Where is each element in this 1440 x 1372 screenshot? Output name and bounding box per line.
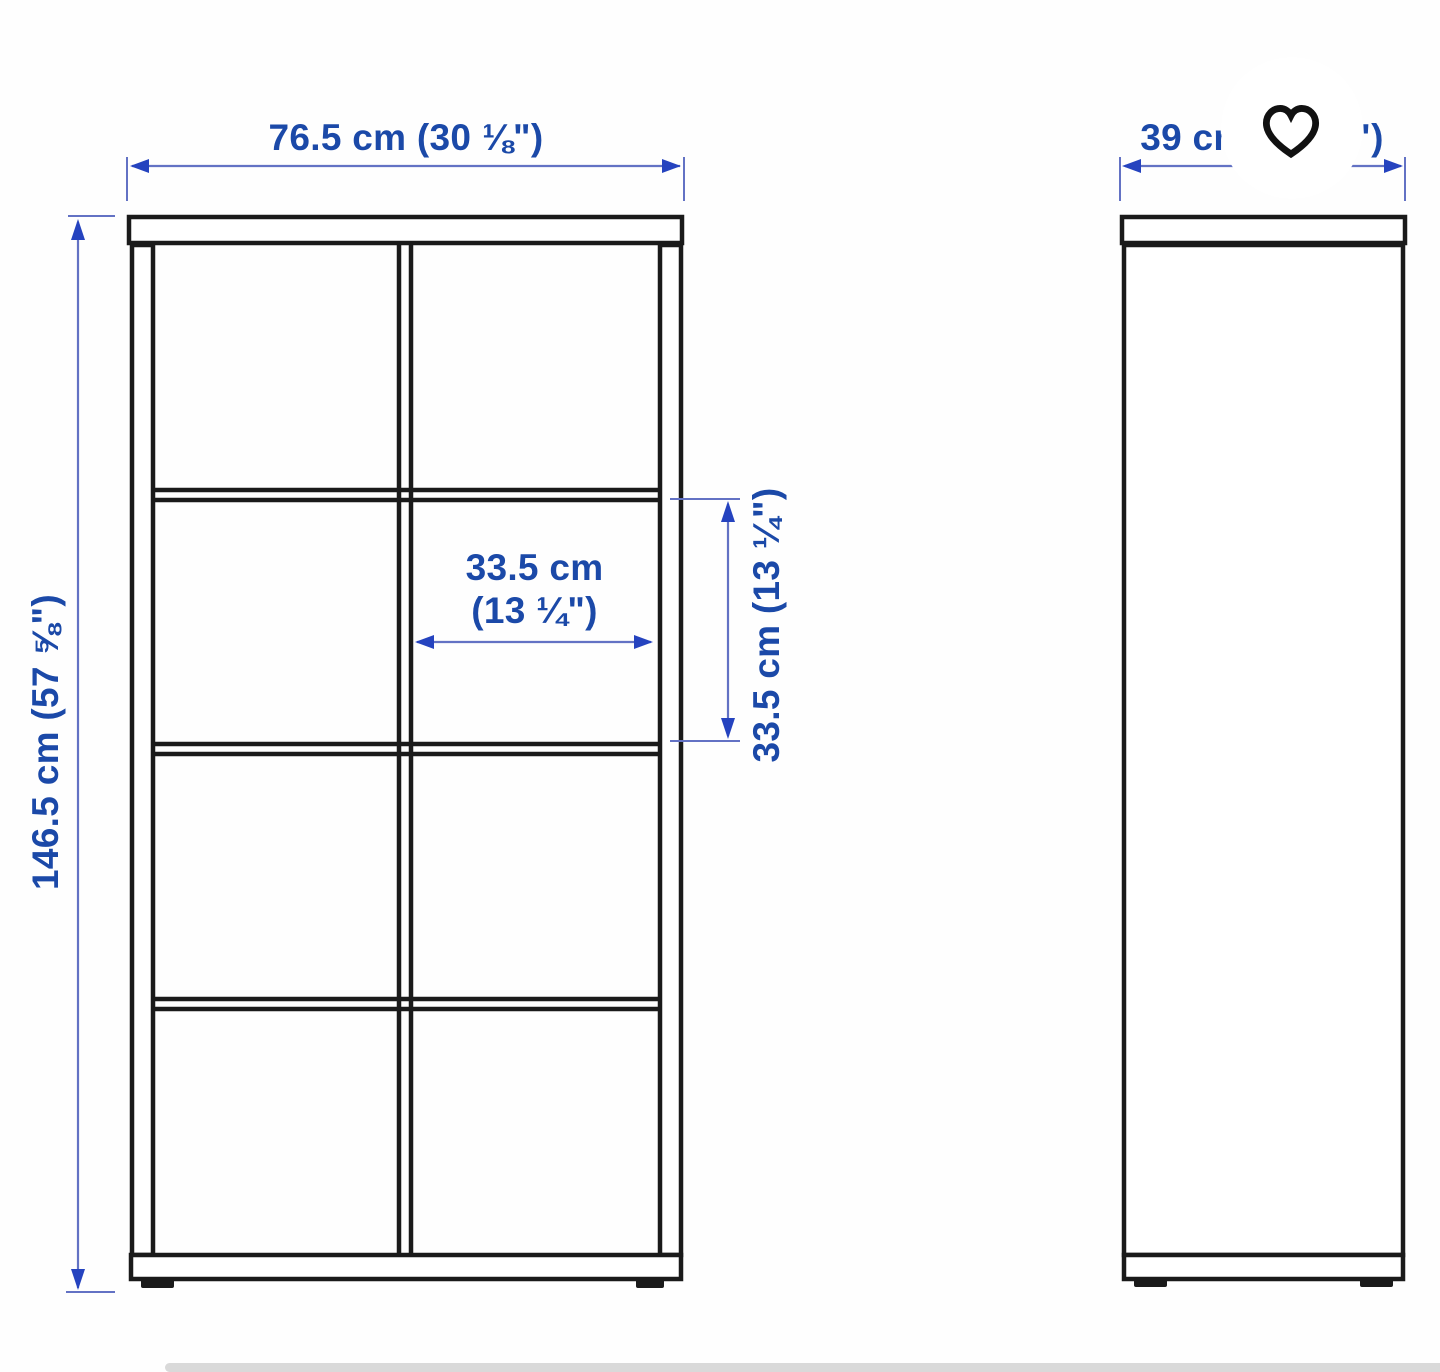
- inner-height-down-arrow-icon: [721, 718, 735, 739]
- side-left-foot: [1134, 1278, 1167, 1287]
- inner-height-up-arrow-icon: [721, 501, 735, 522]
- width-dim-left-arrow-icon: [130, 159, 149, 173]
- front-right-wall: [660, 245, 681, 1255]
- inner-width-dimension: [415, 635, 653, 649]
- front-view: [129, 217, 682, 1288]
- heart-icon: [1257, 96, 1325, 160]
- inner-width-left-arrow-icon: [415, 635, 434, 649]
- front-plinth: [131, 1255, 681, 1279]
- width-dim-right-arrow-icon: [662, 159, 681, 173]
- inner-height-label: 33.5 cm (13 ¼"): [745, 455, 785, 795]
- side-body: [1124, 245, 1403, 1255]
- front-top-panel: [129, 217, 682, 243]
- front-right-foot: [636, 1278, 664, 1288]
- front-left-foot: [141, 1278, 174, 1288]
- height-dim-up-arrow-icon: [71, 219, 85, 240]
- depth-dim-left-arrow-icon: [1122, 159, 1141, 173]
- favorite-button[interactable]: [1257, 96, 1325, 160]
- side-plinth: [1124, 1255, 1403, 1279]
- diagram-geometry: [0, 0, 1440, 1372]
- height-dim-down-arrow-icon: [71, 1269, 85, 1290]
- overall-width-label: 76.5 cm (30 ⅛"): [130, 116, 682, 159]
- overall-height-dimension: [66, 216, 115, 1292]
- side-top-panel: [1122, 217, 1405, 243]
- product-dimension-diagram: 76.5 cm (30 ⅛") 146.5 cm (57 ⅝") 33.5 cm…: [0, 0, 1440, 1372]
- side-view: [1122, 217, 1405, 1287]
- inner-width-right-arrow-icon: [634, 635, 653, 649]
- overall-width-dimension: [127, 157, 684, 201]
- overall-height-label: 146.5 cm (57 ⅝"): [24, 462, 64, 1022]
- bottom-scroll-strip[interactable]: [165, 1363, 1440, 1372]
- depth-dim-right-arrow-icon: [1384, 159, 1403, 173]
- inner-width-label-line2: (13 ¼"): [407, 589, 662, 632]
- front-left-wall: [132, 245, 153, 1255]
- inner-width-label-line1: 33.5 cm: [407, 546, 662, 589]
- side-right-foot: [1360, 1278, 1393, 1287]
